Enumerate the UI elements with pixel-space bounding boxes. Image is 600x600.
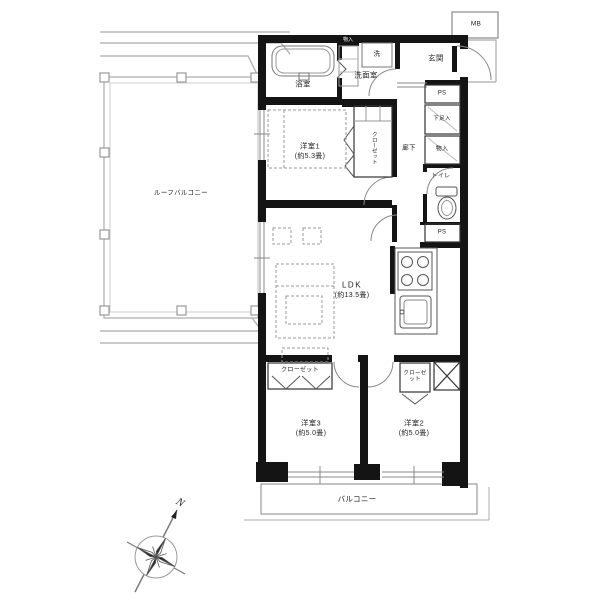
hallway-label: 廊下: [402, 144, 416, 151]
closet-bedroom2: [400, 363, 430, 404]
toilet-fixture: [436, 187, 457, 219]
bedroom1-name-label: 洋室1: [300, 143, 320, 152]
bedroom2-closet-label: クローゼット: [403, 371, 427, 384]
bathroom-label: 浴室: [295, 81, 311, 90]
storage-label: 物入: [436, 147, 449, 154]
ldk-size-label: (約13.5畳): [335, 292, 370, 300]
entrance-label: 玄関: [428, 55, 444, 64]
bathtub: [272, 46, 334, 80]
stove: [398, 252, 432, 290]
hallway-cabinets: [425, 85, 460, 242]
ps-bottom-label: PS: [438, 230, 447, 237]
bedroom1-size-label: (約5.3畳): [295, 153, 326, 161]
closet-bedroom1: [344, 106, 392, 177]
washer-label: 洗: [374, 50, 381, 57]
toilet-label: トイレ: [432, 174, 451, 181]
floorplan-canvas: ルーフバルコニー 浴室 物入 洗 洗面室 玄関 MB PS 下足入 廊下 物入 …: [0, 0, 600, 600]
shoe-cabinet-label: 下足入: [433, 116, 450, 122]
sink: [400, 296, 431, 328]
meter-box-label: MB: [471, 20, 481, 27]
bedroom2-size-label: (約5.0畳): [399, 430, 430, 438]
shaft-x-box: [434, 362, 460, 390]
dining-set-outline: [273, 228, 321, 244]
balcony-label: バルコニー: [338, 496, 377, 505]
floorplan-drawing: [0, 0, 600, 600]
roof-balcony-label: ルーフバルコニー: [154, 189, 208, 196]
bedroom3-closet-label: クローゼット: [281, 368, 319, 375]
sofa-set-outline: [276, 264, 334, 362]
bedroom1-closet-label: クローゼット: [370, 132, 376, 165]
ldk-name-label: LDK: [342, 280, 362, 289]
washroom-label: 洗面室: [354, 72, 377, 81]
bedroom3-size-label: (約5.0畳): [296, 430, 327, 438]
kitchen-counter: [395, 248, 437, 334]
bedroom3-name-label: 洋室3: [301, 420, 321, 429]
laundry-cabinet-label: 物入: [343, 38, 353, 44]
compass-rose: [127, 510, 185, 592]
bedroom2-name-label: 洋室2: [404, 420, 424, 429]
ps-top-label: PS: [438, 91, 447, 98]
